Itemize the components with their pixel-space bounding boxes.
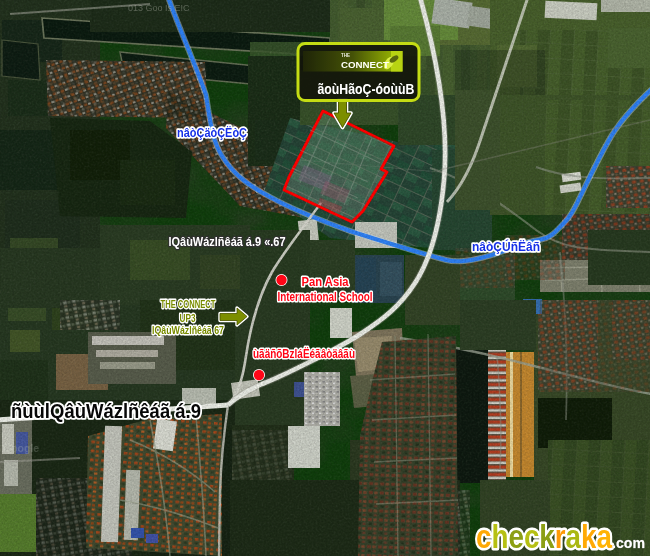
svg-text:lQâùWázlñêáã 67: lQâùWázlñêáã 67 (152, 324, 224, 336)
svg-text:.com: .com (612, 535, 645, 551)
svg-text:lQâùWázlñêáã á.9 «.67: lQâùWázlñêáã á.9 «.67 (169, 234, 286, 249)
svg-text:nâòÇÚñËâñ: nâòÇÚñËâñ (472, 239, 540, 254)
svg-text:ùãäñõBzláËéãâòäâãù: ùãäñõBzláËéãâòäâãù (253, 346, 355, 361)
svg-text:ãoùHãoÇ-óoùùB: ãoùHãoÇ-óoùùB (318, 80, 415, 97)
svg-text:UP3: UP3 (180, 312, 196, 324)
svg-text:CONNECT: CONNECT (341, 59, 389, 70)
svg-text:nâòÇäòÇËòÇ: nâòÇäòÇËòÇ (177, 125, 247, 140)
svg-text:THE CONNECT: THE CONNECT (161, 298, 216, 310)
svg-text:THE: THE (341, 53, 350, 58)
svg-text:ñùùlQâùWázlñêáã á.9: ñùùlQâùWázlñêáã á.9 (11, 400, 201, 422)
svg-text:International School: International School (278, 290, 373, 304)
svg-text:checkraka: checkraka (476, 517, 613, 555)
svg-text:Pan Asia: Pan Asia (302, 275, 349, 289)
svg-text:Google: Google (3, 442, 39, 454)
